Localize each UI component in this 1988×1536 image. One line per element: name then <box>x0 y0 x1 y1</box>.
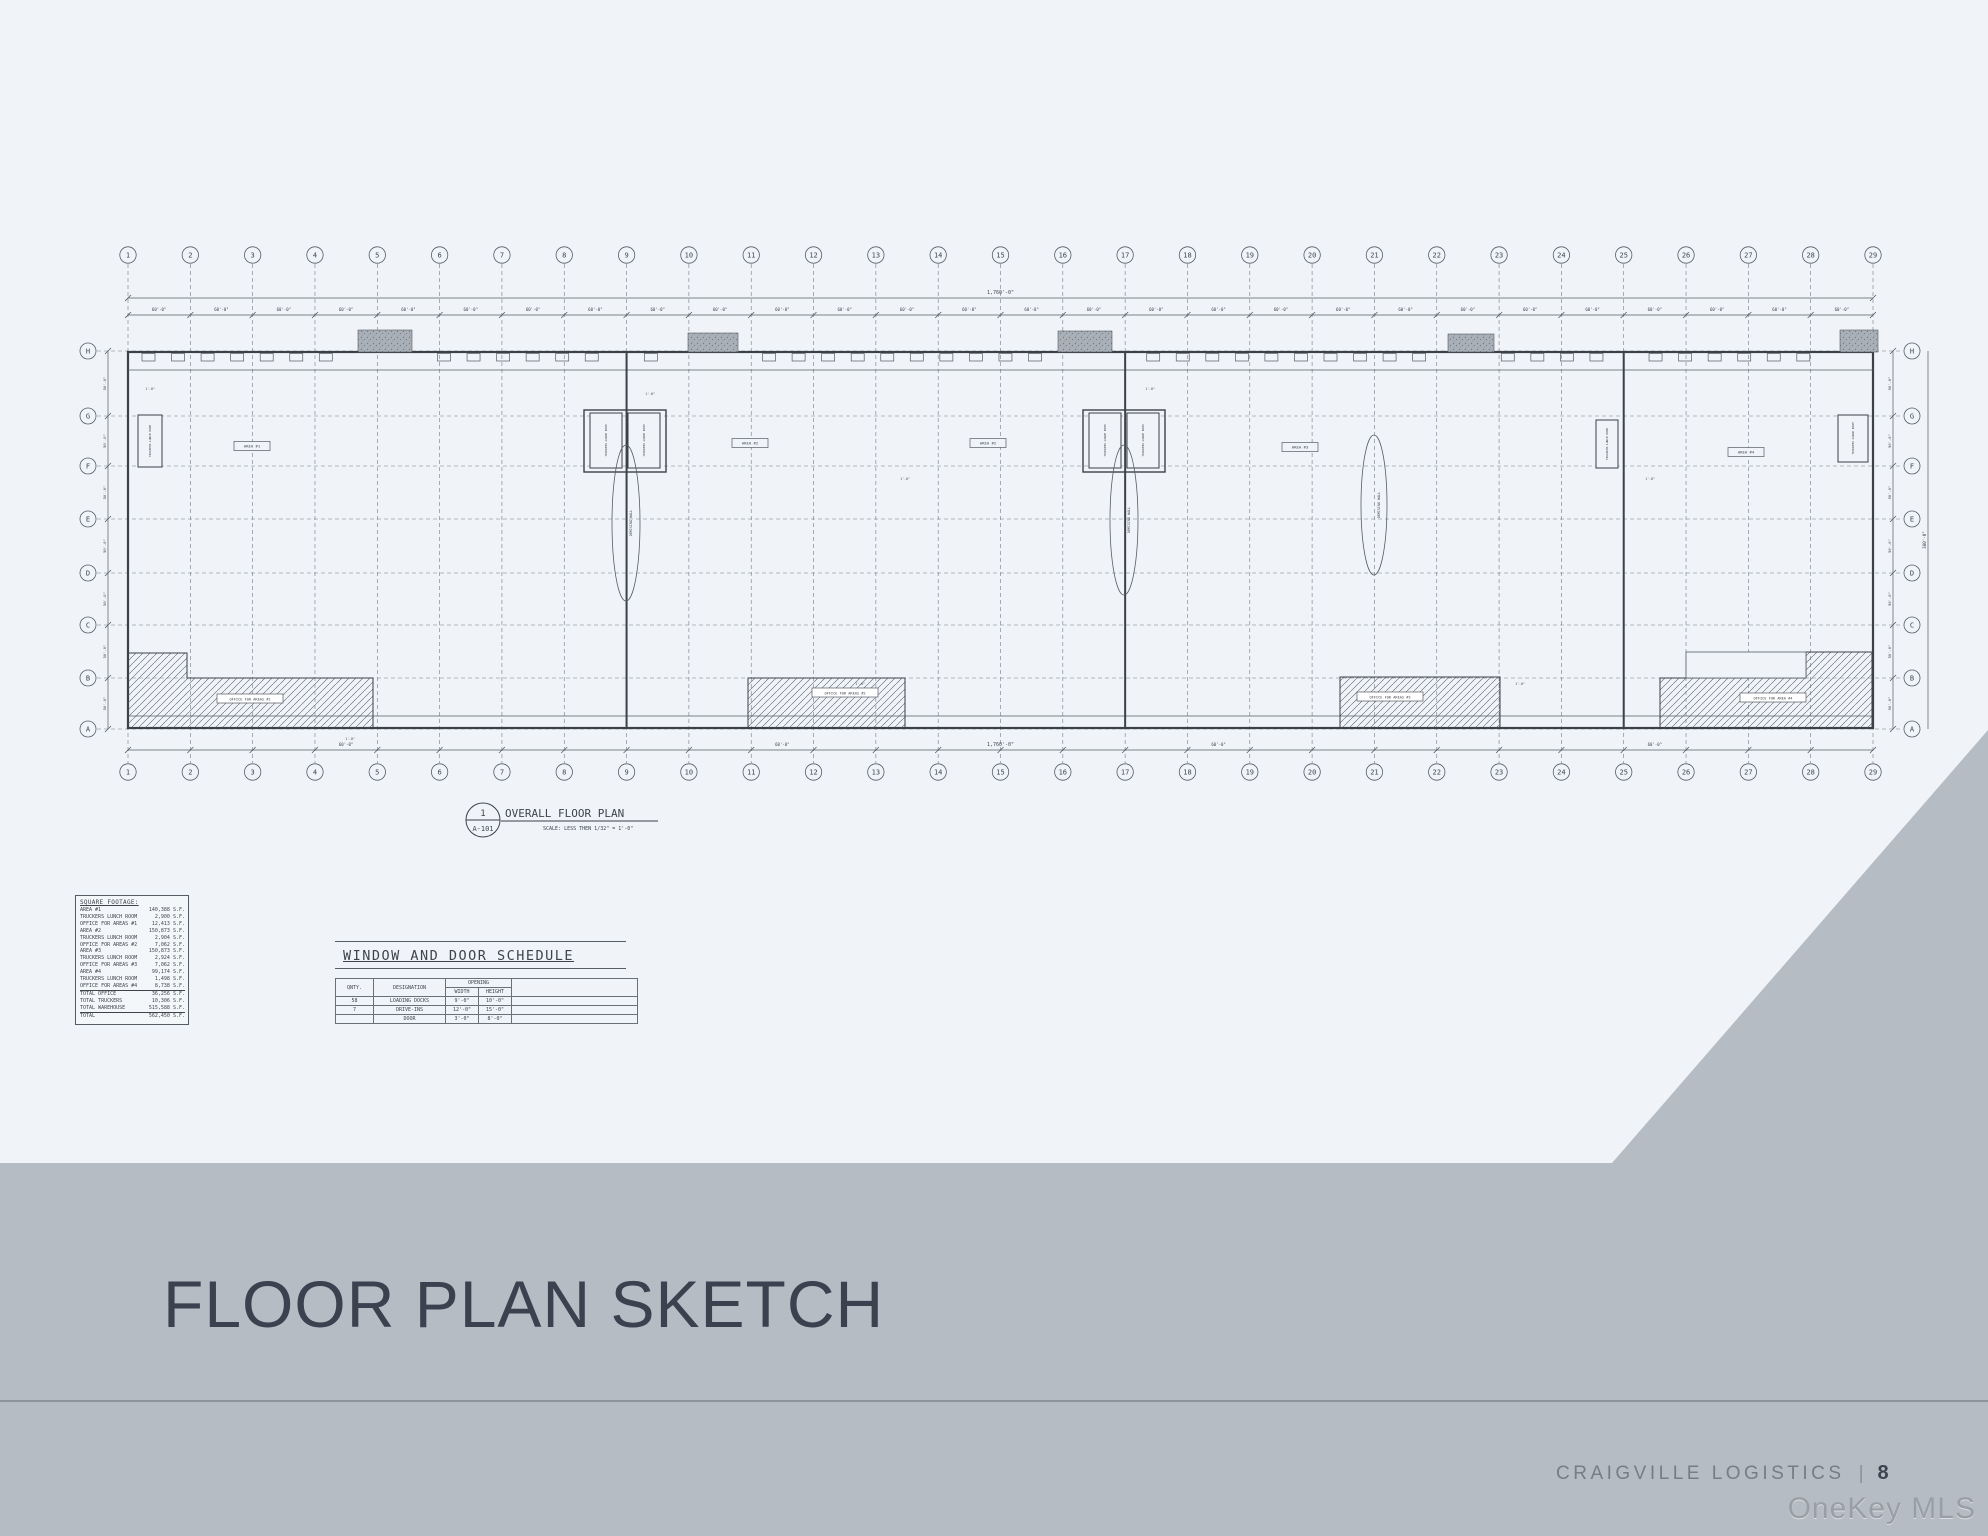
column-bubble-number: 4 <box>313 252 317 260</box>
column-bubble-number: 20 <box>1308 252 1316 260</box>
office-label: OFFICE FOR AREA #4 <box>1754 697 1793 701</box>
column-bubble-number: 12 <box>809 769 817 777</box>
square-footage-row: TRUCKERS LUNCH ROOM2,924 S.F. <box>80 955 185 962</box>
dock-door <box>763 354 776 362</box>
dock-door <box>1265 354 1278 362</box>
column-bubble-number: 25 <box>1619 252 1627 260</box>
dock-door <box>1206 354 1219 362</box>
side-bay-dim-text: 50'-0" <box>102 592 107 606</box>
row-bubble-letter: F <box>86 463 90 471</box>
mechanical-block <box>1840 330 1878 352</box>
bay-dim-text: 60'-0" <box>339 307 353 312</box>
bay-dim-text: 60'-0" <box>1523 307 1537 312</box>
schedule-title-box: WINDOW AND DOOR SCHEDULE <box>335 941 626 969</box>
schedule-cell: 9'-0" <box>446 997 479 1006</box>
column-bubble-number: 6 <box>437 769 441 777</box>
area-label: AREA #1 <box>244 444 261 449</box>
column-bubble-number: 12 <box>809 252 817 260</box>
mechanical-block <box>358 330 412 352</box>
office-area-3 <box>1340 677 1500 728</box>
column-bubble-number: 3 <box>251 252 255 260</box>
dock-door <box>319 354 332 362</box>
schedule-cell <box>512 997 638 1006</box>
sf-value: 36,256 S.F. <box>152 991 185 998</box>
row-bubble-letter: A <box>1910 726 1915 734</box>
sf-value: 1,498 S.F. <box>155 976 185 983</box>
column-bubble-number: 8 <box>562 769 566 777</box>
dock-door <box>526 354 539 362</box>
area-label: AREA #2 <box>980 441 997 446</box>
overall-floor-plan-drawing: 1,760'-0"60'-0"60'-0"60'-0"60'-0"60'-0"6… <box>0 180 1988 880</box>
column-bubble-number: 10 <box>685 252 693 260</box>
sf-value: 8,738 S.F. <box>155 983 185 990</box>
dock-door <box>1679 354 1692 362</box>
dock-door <box>1738 354 1751 362</box>
dock-door <box>822 354 835 362</box>
square-footage-row: TRUCKERS LUNCH ROOM2,900 S.F. <box>80 914 185 921</box>
column-bubble-number: 15 <box>996 769 1004 777</box>
dock-door <box>260 354 273 362</box>
plan-scale: SCALE: LESS THEN 1/32" = 1'-0" <box>543 826 633 832</box>
column-bubble-number: 2 <box>188 769 192 777</box>
sf-label: TRUCKERS LUNCH ROOM <box>80 955 137 962</box>
bay-dim-text: 60'-0" <box>1648 307 1662 312</box>
bay-dim-text: 60'-0" <box>1585 307 1599 312</box>
sf-value: 7,062 S.F. <box>155 962 185 969</box>
office-label: OFFICE FOR AREAS #1 <box>229 698 270 702</box>
column-bubble-number: 1 <box>126 252 130 260</box>
sf-label: TOTAL OFFICE <box>80 991 116 998</box>
bay-dim-text: 60'-0" <box>775 307 789 312</box>
column-bubble-number: 1 <box>126 769 130 777</box>
square-footage-row: AREA #3150,873 S.F. <box>80 948 185 955</box>
office-label: OFFICE FOR AREAS #2 <box>824 692 865 696</box>
column-bubble-number: 20 <box>1308 769 1316 777</box>
area-label: AREA #2 <box>742 441 759 446</box>
square-footage-row: AREA #1140,388 S.F. <box>80 907 185 914</box>
column-bubble-number: 13 <box>872 769 880 777</box>
column-bubble-number: 27 <box>1744 252 1752 260</box>
dock-door <box>497 354 510 362</box>
square-footage-table: SQUARE FOOTAGE: AREA #1140,388 S.F.TRUCK… <box>75 895 189 1025</box>
square-footage-row: TOTAL562,450 S.F. <box>80 1013 185 1020</box>
mechanical-block <box>1058 331 1112 352</box>
small-dim-text: 1'-0" <box>1515 682 1525 686</box>
column-bubble-number: 4 <box>313 769 317 777</box>
column-bubble-number: 19 <box>1246 252 1254 260</box>
sf-label: AREA #4 <box>80 969 101 976</box>
small-dim-text: 1'-0" <box>1145 387 1155 391</box>
dock-door <box>1649 354 1662 362</box>
slide-page: { "page": { "band_color": "#b5bcc4", "ti… <box>0 0 1988 1536</box>
office-4-upper-room <box>1686 652 1806 678</box>
square-footage-row: AREA #499,174 S.F. <box>80 969 185 976</box>
schedule-cell: DRIVE-INS <box>374 1006 446 1015</box>
schedule-header-designation: DESIGNATION <box>374 979 446 997</box>
bay-dim-text: 60'-0" <box>526 307 540 312</box>
bay-dim-text: 60'-0" <box>152 307 166 312</box>
schedule-cell: 7 <box>336 1006 374 1015</box>
column-bubble-number: 15 <box>996 252 1004 260</box>
bay-dim-text: 60'-0" <box>651 307 665 312</box>
schedule-title: WINDOW AND DOOR SCHEDULE <box>343 948 574 964</box>
sf-label: TOTAL <box>80 1013 95 1020</box>
column-bubble-number: 17 <box>1121 252 1129 260</box>
sf-label: OFFICE FOR AREAS #4 <box>80 983 137 990</box>
sf-label: TRUCKERS LUNCH ROOM <box>80 935 137 942</box>
bay-dim-text: 60'-0" <box>713 307 727 312</box>
small-dim-text: 1'-0" <box>1645 477 1655 481</box>
sf-label: AREA #1 <box>80 907 101 914</box>
bay-dim-text: 60'-0" <box>464 307 478 312</box>
dock-door <box>792 354 805 362</box>
dock-door <box>1531 354 1544 362</box>
bay-dim-text: 60'-0" <box>1336 307 1350 312</box>
bay-dim-text: 60'-0" <box>277 307 291 312</box>
row-bubble-letter: B <box>86 675 90 683</box>
column-bubble-number: 25 <box>1619 769 1627 777</box>
column-bubble-number: 6 <box>437 252 441 260</box>
column-bubble-number: 14 <box>934 769 942 777</box>
square-footage-row: TOTAL OFFICE36,256 S.F. <box>80 991 185 998</box>
bay-dim-text: 60'-0" <box>1398 307 1412 312</box>
dock-door <box>585 354 598 362</box>
column-bubble-number: 5 <box>375 769 379 777</box>
sf-value: 10,306 S.F. <box>152 998 185 1005</box>
dock-door <box>467 354 480 362</box>
footer-brand: CRAIGVILLE LOGISTICS <box>1556 1463 1845 1485</box>
column-bubble-number: 9 <box>624 769 628 777</box>
column-bubble-number: 27 <box>1744 769 1752 777</box>
row-bubble-letter: C <box>86 622 90 630</box>
sf-label: OFFICE FOR AREAS #3 <box>80 962 137 969</box>
dock-door <box>1324 354 1337 362</box>
side-bay-dim-text: 50'-0" <box>1887 645 1892 659</box>
side-bay-dim-text: 50'-0" <box>102 377 107 391</box>
row-bubble-letter: E <box>1910 516 1914 524</box>
column-bubble-number: 5 <box>375 252 379 260</box>
square-footage-rows: AREA #1140,388 S.F.TRUCKERS LUNCH ROOM2,… <box>80 907 185 1020</box>
schedule-cell <box>336 1015 374 1024</box>
schedule-header-height: HEIGHT <box>479 988 512 997</box>
column-bubble-number: 28 <box>1806 252 1814 260</box>
demising-ellipse <box>1110 445 1138 595</box>
schedule-table: QNTY.DESIGNATIONOPENINGWIDTHHEIGHT58LOAD… <box>335 978 638 1024</box>
schedule-cell <box>512 1015 638 1024</box>
sf-label: TOTAL TRUCKERS <box>80 998 122 1005</box>
column-bubble-number: 21 <box>1370 252 1378 260</box>
small-dim-text: 1'-0" <box>345 737 355 741</box>
bay-dim-text: 60'-0" <box>1710 307 1724 312</box>
dock-door <box>1029 354 1042 362</box>
sf-label: OFFICE FOR AREAS #2 <box>80 942 137 949</box>
column-bubble-number: 3 <box>251 769 255 777</box>
column-bubble-number: 11 <box>747 769 755 777</box>
office-area-1 <box>128 653 373 728</box>
column-bubble-number: 9 <box>624 252 628 260</box>
side-bay-dim-text: 50'-0" <box>102 434 107 448</box>
demising-ellipse <box>1361 435 1387 575</box>
dock-door <box>1797 354 1810 362</box>
row-bubble-letter: H <box>86 348 90 356</box>
sf-value: 562,450 S.F. <box>149 1013 185 1020</box>
detail-number: 1 <box>480 809 485 819</box>
column-bubble-number: 24 <box>1557 252 1565 260</box>
small-dim-text: 1'-0" <box>145 387 155 391</box>
dock-door <box>1560 354 1573 362</box>
schedule-cell: 8'-0" <box>479 1015 512 1024</box>
bay-dim-text: 60'-0" <box>1149 307 1163 312</box>
schedule-header-qnty: QNTY. <box>336 979 374 997</box>
sf-value: 99,174 S.F. <box>152 969 185 976</box>
lunch-room-label: TRUCKERS LUNCH ROOM <box>1141 424 1145 456</box>
lunch-room-label: TRUCKERS LUNCH ROOM <box>1103 424 1107 456</box>
sf-value: 7,062 S.F. <box>155 942 185 949</box>
row-bubble-letter: G <box>86 413 90 421</box>
column-bubble-number: 16 <box>1059 769 1067 777</box>
dock-door <box>1501 354 1514 362</box>
square-footage-row: TRUCKERS LUNCH ROOM2,904 S.F. <box>80 935 185 942</box>
row-bubble-letter: B <box>1910 675 1914 683</box>
dock-door <box>1147 354 1160 362</box>
sf-value: 2,904 S.F. <box>155 935 185 942</box>
sf-value: 515,588 S.F. <box>149 1005 185 1012</box>
page-title: FLOOR PLAN SKETCH <box>163 1266 884 1342</box>
schedule-header-width: WIDTH <box>446 988 479 997</box>
footer-page-number: 8 <box>1878 1462 1890 1485</box>
column-bubble-number: 10 <box>685 769 693 777</box>
dock-door <box>1294 354 1307 362</box>
column-bubble-number: 23 <box>1495 252 1503 260</box>
bay-dim-text: 60'-0" <box>1274 307 1288 312</box>
dock-door <box>910 354 923 362</box>
dock-door <box>1383 354 1396 362</box>
column-bubble-number: 2 <box>188 252 192 260</box>
lunch-room-label: TRUCKERS LUNCH ROOM <box>1851 422 1855 454</box>
overall-dim-text: 1,760'-0" <box>987 290 1014 296</box>
footer: CRAIGVILLE LOGISTICS | 8 <box>1556 1462 1890 1485</box>
row-bubble-letter: C <box>1910 622 1914 630</box>
column-bubble-number: 26 <box>1682 769 1690 777</box>
sf-label: TRUCKERS LUNCH ROOM <box>80 914 137 921</box>
side-bay-dim-text: 50'-0" <box>1887 486 1892 500</box>
sf-label: AREA #2 <box>80 928 101 935</box>
bay-dim-text: 60'-0" <box>588 307 602 312</box>
sf-value: 150,873 S.F. <box>149 948 185 955</box>
footer-separator: | <box>1859 1463 1864 1485</box>
lunch-room-label: TRUCKERS LUNCH ROOM <box>1605 428 1609 460</box>
column-bubble-number: 7 <box>500 769 504 777</box>
side-bay-dim-text: 50'-0" <box>1887 697 1892 711</box>
bay-dim-text: 60'-0" <box>775 742 789 747</box>
column-bubble-number: 7 <box>500 252 504 260</box>
schedule-cell: DOOR <box>374 1015 446 1024</box>
bay-dim-text: 60'-0" <box>1211 307 1225 312</box>
side-overall-dim-text: 380'-0" <box>1922 531 1927 549</box>
bay-dim-text: 60'-0" <box>401 307 415 312</box>
square-footage-row: TRUCKERS LUNCH ROOM1,498 S.F. <box>80 976 185 983</box>
area-label: AREA #4 <box>1738 450 1755 455</box>
mechanical-block <box>688 333 738 352</box>
dock-door <box>556 354 569 362</box>
column-bubble-number: 22 <box>1433 769 1441 777</box>
row-bubble-letter: D <box>86 570 90 578</box>
small-dim-text: 1'-0" <box>645 392 655 396</box>
sf-value: 2,900 S.F. <box>155 914 185 921</box>
dock-door <box>940 354 953 362</box>
bay-dim-text: 60'-0" <box>1772 307 1786 312</box>
schedule-cell: 10'-0" <box>479 997 512 1006</box>
side-bay-dim-text: 50'-0" <box>1887 434 1892 448</box>
plan-title: OVERALL FLOOR PLAN <box>505 807 624 820</box>
small-dim-text: 1'-0" <box>855 682 865 686</box>
dock-door <box>1413 354 1426 362</box>
sf-label: TOTAL WAREHOUSE <box>80 1005 125 1012</box>
column-bubble-number: 8 <box>562 252 566 260</box>
square-footage-row: OFFICE FOR AREAS #27,062 S.F. <box>80 942 185 949</box>
schedule-cell: 58 <box>336 997 374 1006</box>
bay-dim-text: 60'-0" <box>962 307 976 312</box>
lunch-room-label: TRUCKERS LUNCH ROOM <box>604 424 608 456</box>
column-bubble-number: 29 <box>1869 769 1877 777</box>
sheet-number: A-101 <box>472 825 493 833</box>
dock-door <box>644 354 657 362</box>
dock-door <box>231 354 244 362</box>
bay-dim-text: 60'-0" <box>214 307 228 312</box>
side-bay-dim-text: 50'-0" <box>102 645 107 659</box>
sf-label: AREA #3 <box>80 948 101 955</box>
dock-door <box>290 354 303 362</box>
dock-door <box>1767 354 1780 362</box>
sf-label: OFFICE FOR AREAS #1 <box>80 921 137 928</box>
dock-door <box>999 354 1012 362</box>
demising-label: DEMISING WALL <box>629 510 633 537</box>
bay-dim-text: 60'-0" <box>837 307 851 312</box>
bay-dim-text: 60'-0" <box>1648 742 1662 747</box>
row-bubble-letter: A <box>86 726 91 734</box>
column-bubble-number: 13 <box>872 252 880 260</box>
square-footage-row: OFFICE FOR AREAS #112,413 S.F. <box>80 921 185 928</box>
square-footage-title: SQUARE FOOTAGE: <box>80 899 185 907</box>
schedule-cell: LOADING DOCKS <box>374 997 446 1006</box>
demising-label: DEMISING WALL <box>1127 507 1131 534</box>
row-bubble-letter: F <box>1910 463 1914 471</box>
bay-dim-text: 60'-0" <box>1024 307 1038 312</box>
dock-door <box>1354 354 1367 362</box>
square-footage-row: AREA #2150,873 S.F. <box>80 928 185 935</box>
dock-door <box>881 354 894 362</box>
dock-door <box>1235 354 1248 362</box>
dock-door <box>969 354 982 362</box>
column-bubble-number: 24 <box>1557 769 1565 777</box>
bay-dim-text: 60'-0" <box>1461 307 1475 312</box>
bay-dim-text: 60'-0" <box>1835 307 1849 312</box>
row-bubble-letter: D <box>1910 570 1914 578</box>
lunch-room-label: TRUCKERS LUNCH ROOM <box>642 424 646 456</box>
column-bubble-number: 23 <box>1495 769 1503 777</box>
schedule-cell <box>512 979 638 997</box>
row-bubble-letter: E <box>86 516 90 524</box>
square-footage-row: OFFICE FOR AREAS #48,738 S.F. <box>80 983 185 991</box>
column-bubble-number: 17 <box>1121 769 1129 777</box>
column-bubble-number: 18 <box>1183 252 1191 260</box>
column-bubble-number: 26 <box>1682 252 1690 260</box>
square-footage-row: OFFICE FOR AREAS #37,062 S.F. <box>80 962 185 969</box>
row-bubble-letter: H <box>1910 348 1914 356</box>
side-bay-dim-text: 50'-0" <box>102 697 107 711</box>
area-label: AREA #3 <box>1292 445 1309 450</box>
dock-door <box>201 354 214 362</box>
column-bubble-number: 28 <box>1806 769 1814 777</box>
sf-value: 2,924 S.F. <box>155 955 185 962</box>
schedule-cell: 15'-0" <box>479 1006 512 1015</box>
footer-divider-line <box>0 1400 1988 1402</box>
schedule-cell <box>512 1006 638 1015</box>
dock-door <box>1708 354 1721 362</box>
side-bay-dim-text: 50'-0" <box>1887 377 1892 391</box>
dock-door <box>142 354 155 362</box>
bay-dim-text: 60'-0" <box>339 742 353 747</box>
bottom-overall-dim-text: 1,760'-0" <box>987 742 1014 748</box>
sf-value: 150,873 S.F. <box>149 928 185 935</box>
side-bay-dim-text: 50'-0" <box>1887 592 1892 606</box>
demising-label: DEMISING WALL <box>1377 492 1381 519</box>
column-bubble-number: 29 <box>1869 252 1877 260</box>
column-bubble-number: 11 <box>747 252 755 260</box>
bay-dim-text: 60'-0" <box>900 307 914 312</box>
schedule-cell: 12'-0" <box>446 1006 479 1015</box>
column-bubble-number: 19 <box>1246 769 1254 777</box>
side-bay-dim-text: 50'-0" <box>102 539 107 553</box>
small-dim-text: 1'-0" <box>900 477 910 481</box>
mechanical-block <box>1448 334 1494 352</box>
sf-value: 140,388 S.F. <box>149 907 185 914</box>
column-bubble-number: 21 <box>1370 769 1378 777</box>
schedule-cell: 3'-0" <box>446 1015 479 1024</box>
office-label: OFFICE FOR AREAS #3 <box>1369 696 1410 700</box>
side-bay-dim-text: 50'-0" <box>102 486 107 500</box>
sf-value: 12,413 S.F. <box>152 921 185 928</box>
square-footage-row: TOTAL TRUCKERS10,306 S.F. <box>80 998 185 1005</box>
bay-dim-text: 60'-0" <box>1211 742 1225 747</box>
column-bubble-number: 22 <box>1433 252 1441 260</box>
office-area-2 <box>748 678 905 728</box>
dock-door <box>851 354 864 362</box>
onekey-mls-watermark: OneKey MLS <box>1788 1492 1976 1526</box>
lunch-room-label: TRUCKERS LUNCH ROOM <box>148 425 152 457</box>
schedule-header-opening: OPENING <box>446 979 512 988</box>
column-bubble-number: 18 <box>1183 769 1191 777</box>
square-footage-row: TOTAL WAREHOUSE515,588 S.F. <box>80 1005 185 1013</box>
bay-dim-text: 60'-0" <box>1087 307 1101 312</box>
dock-door <box>1590 354 1603 362</box>
side-bay-dim-text: 50'-0" <box>1887 539 1892 553</box>
row-bubble-letter: G <box>1910 413 1914 421</box>
column-bubble-number: 14 <box>934 252 942 260</box>
dock-door <box>172 354 185 362</box>
window-door-schedule: WINDOW AND DOOR SCHEDULE QNTY.DESIGNATIO… <box>335 941 637 1024</box>
column-bubble-number: 16 <box>1059 252 1067 260</box>
sf-label: TRUCKERS LUNCH ROOM <box>80 976 137 983</box>
